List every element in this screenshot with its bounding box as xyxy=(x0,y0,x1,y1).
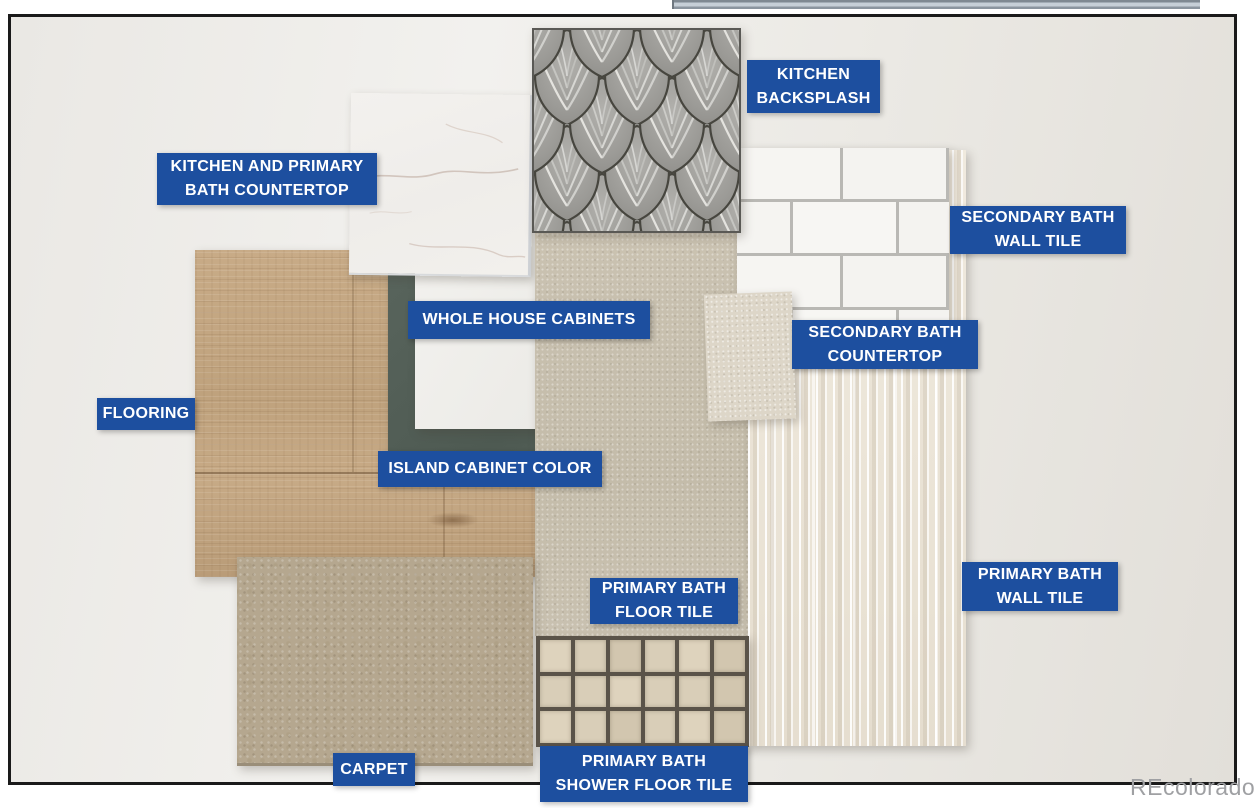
mosaic-tile xyxy=(714,676,745,708)
mosaic-tile xyxy=(610,640,641,672)
mosaic-tile xyxy=(679,640,710,672)
mosaic-tile xyxy=(575,640,606,672)
materials-board-photo: KITCHEN BACKSPLASH KITCHEN AND PRIMARY B… xyxy=(11,17,1234,782)
mosaic-tile xyxy=(540,711,571,743)
design-board-page: KITCHEN BACKSPLASH KITCHEN AND PRIMARY B… xyxy=(0,0,1258,808)
mosaic-tile xyxy=(610,711,641,743)
mosaic-tile xyxy=(575,676,606,708)
label-primary-bath-floor-tile: PRIMARY BATH FLOOR TILE xyxy=(590,578,738,624)
plank-seam xyxy=(352,250,354,472)
mosaic-tile xyxy=(540,676,571,708)
mosaic-tile xyxy=(679,676,710,708)
label-primary-bath-wall-tile: PRIMARY BATH WALL TILE xyxy=(962,562,1118,611)
primary-bath-floor-tile-sample xyxy=(535,232,748,636)
label-whole-house-cabinets: WHOLE HOUSE CABINETS xyxy=(408,301,650,339)
label-kitchen-and-primary-bath-countertop: KITCHEN AND PRIMARY BATH COUNTERTOP xyxy=(157,153,377,205)
label-secondary-bath-countertop: SECONDARY BATH COUNTERTOP xyxy=(792,320,978,369)
mosaic-tile xyxy=(575,711,606,743)
label-carpet: CARPET xyxy=(333,753,415,786)
mosaic-tile xyxy=(714,640,745,672)
label-island-cabinet-color: ISLAND CABINET COLOR xyxy=(378,451,602,487)
carpet-sample xyxy=(237,557,533,766)
window-edge-fragment xyxy=(672,0,1200,9)
mosaic-tile xyxy=(610,676,641,708)
mosaic-tile xyxy=(540,640,571,672)
label-kitchen-backsplash: KITCHEN BACKSPLASH xyxy=(747,60,880,113)
mosaic-grid xyxy=(536,636,749,747)
mosaic-tile xyxy=(645,676,676,708)
label-secondary-bath-wall-tile: SECONDARY BATH WALL TILE xyxy=(950,206,1126,254)
recolorado-watermark: REcolorado xyxy=(1130,774,1255,801)
wood-knot xyxy=(427,512,479,528)
secondary-bath-countertop-sample xyxy=(704,292,796,422)
fan-scale-tile-pattern xyxy=(532,28,741,233)
mosaic-tile xyxy=(645,711,676,743)
mosaic-tile xyxy=(714,711,745,743)
mosaic-tile xyxy=(679,711,710,743)
board-frame: KITCHEN BACKSPLASH KITCHEN AND PRIMARY B… xyxy=(8,14,1237,785)
label-flooring: FLOORING xyxy=(97,398,195,430)
mosaic-tile xyxy=(645,640,676,672)
label-primary-bath-shower-floor-tile: PRIMARY BATH SHOWER FLOOR TILE xyxy=(540,746,748,802)
kitchen-backsplash-sample xyxy=(532,28,741,233)
